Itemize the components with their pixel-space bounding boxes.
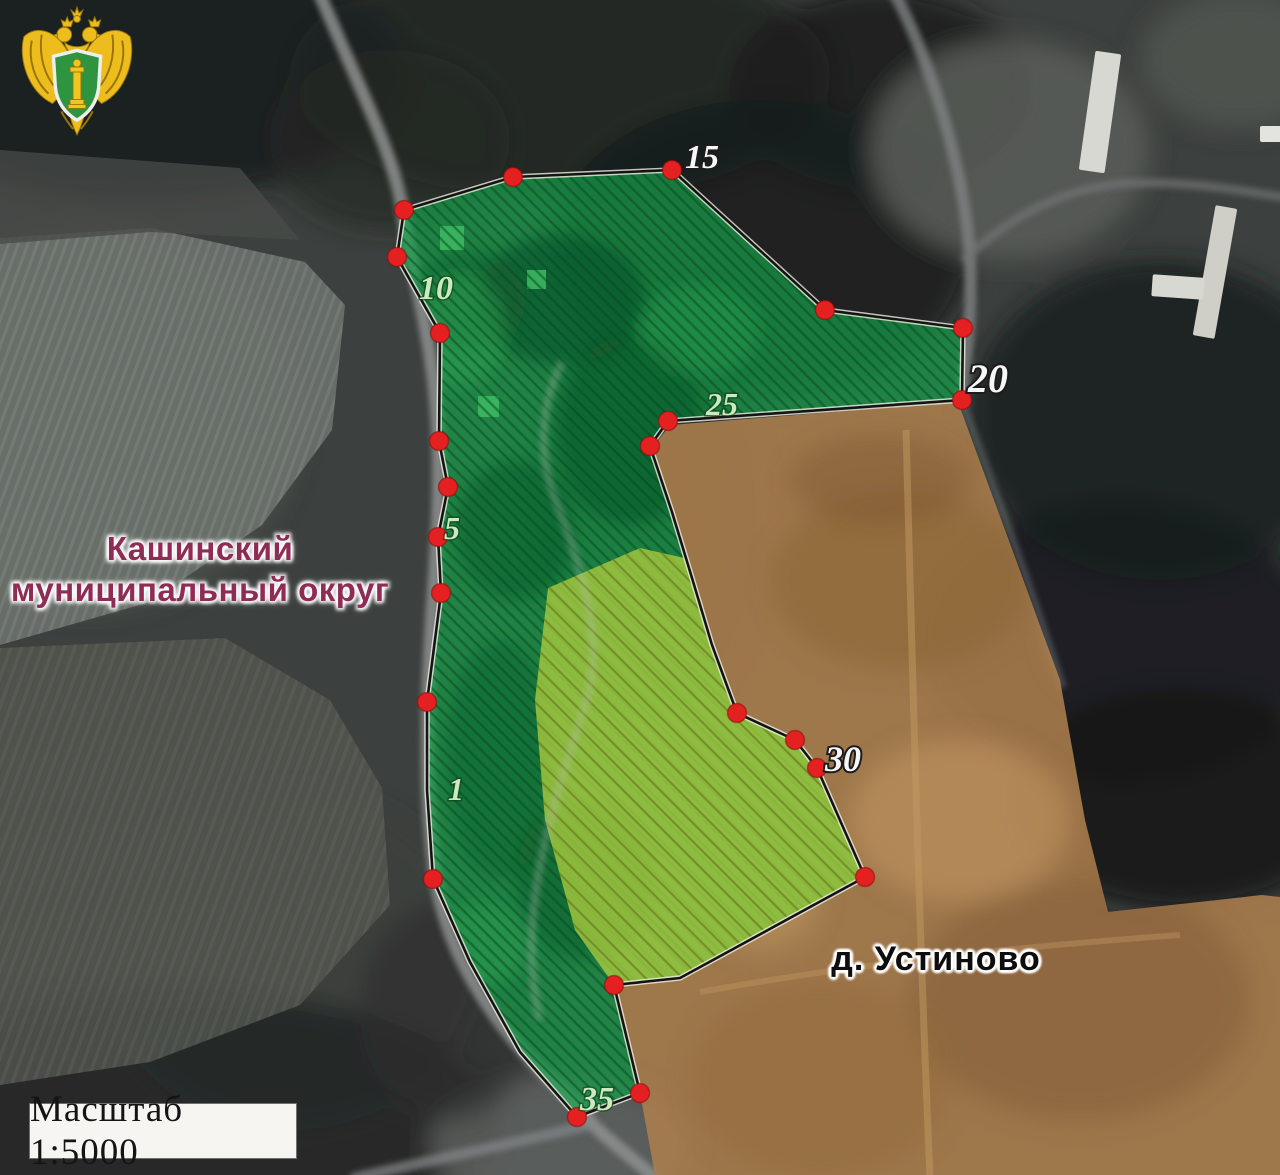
district-label-line1: Кашинский bbox=[5, 528, 395, 569]
scale-box: Масштаб 1:5000 bbox=[29, 1103, 297, 1159]
vertex-dot bbox=[663, 161, 682, 180]
district-label: Кашинский муниципальный округ bbox=[5, 528, 395, 610]
vertex-dot bbox=[808, 759, 827, 778]
settlement-texture-patch bbox=[790, 435, 970, 525]
vertex-dot bbox=[856, 868, 875, 887]
village-label: д. Устиново bbox=[826, 940, 1046, 979]
vertex-dot bbox=[439, 478, 458, 497]
vertex-dot bbox=[432, 584, 451, 603]
vertex-label-1: 1 bbox=[448, 771, 464, 807]
district-label-line2: муниципальный округ bbox=[5, 569, 395, 610]
scale-text: Масштаб 1:5000 bbox=[30, 1088, 296, 1174]
vertex-label-5: 5 bbox=[444, 510, 460, 546]
vertex-dot bbox=[424, 870, 443, 889]
settlement-texture-patch bbox=[910, 880, 1250, 1120]
building bbox=[1260, 126, 1280, 142]
vertex-label-20: 20 bbox=[967, 356, 1008, 401]
vertex-dot bbox=[631, 1084, 650, 1103]
building bbox=[1151, 274, 1204, 300]
vertex-label-30: 30 bbox=[824, 739, 861, 779]
settlement-texture-patch bbox=[690, 980, 950, 1175]
fields-layer bbox=[0, 150, 390, 1085]
vertex-label-10: 10 bbox=[419, 270, 453, 307]
prosecutor-emblem bbox=[18, 4, 136, 144]
vertex-dot bbox=[816, 301, 835, 320]
vertex-dot bbox=[954, 319, 973, 338]
vertex-dot bbox=[786, 731, 805, 750]
terrain-patch bbox=[1140, 0, 1280, 130]
vertex-dot bbox=[418, 693, 437, 712]
settlement-texture-patch bbox=[850, 740, 1070, 900]
vertex-label-35: 35 bbox=[579, 1081, 614, 1118]
vertex-dot bbox=[641, 437, 660, 456]
vertex-dot bbox=[605, 976, 624, 995]
vertex-dot bbox=[659, 412, 678, 431]
vertex-dot bbox=[430, 432, 449, 451]
vertex-dot bbox=[431, 324, 450, 343]
vertex-dot bbox=[395, 201, 414, 220]
vertex-dot bbox=[728, 704, 747, 723]
vertex-dot bbox=[504, 168, 523, 187]
vertex-dot bbox=[388, 248, 407, 267]
vertex-label-15: 15 bbox=[685, 139, 719, 176]
map-screenshot: 15203025105135 bbox=[0, 0, 1280, 1175]
vertex-label-25: 25 bbox=[705, 386, 738, 422]
